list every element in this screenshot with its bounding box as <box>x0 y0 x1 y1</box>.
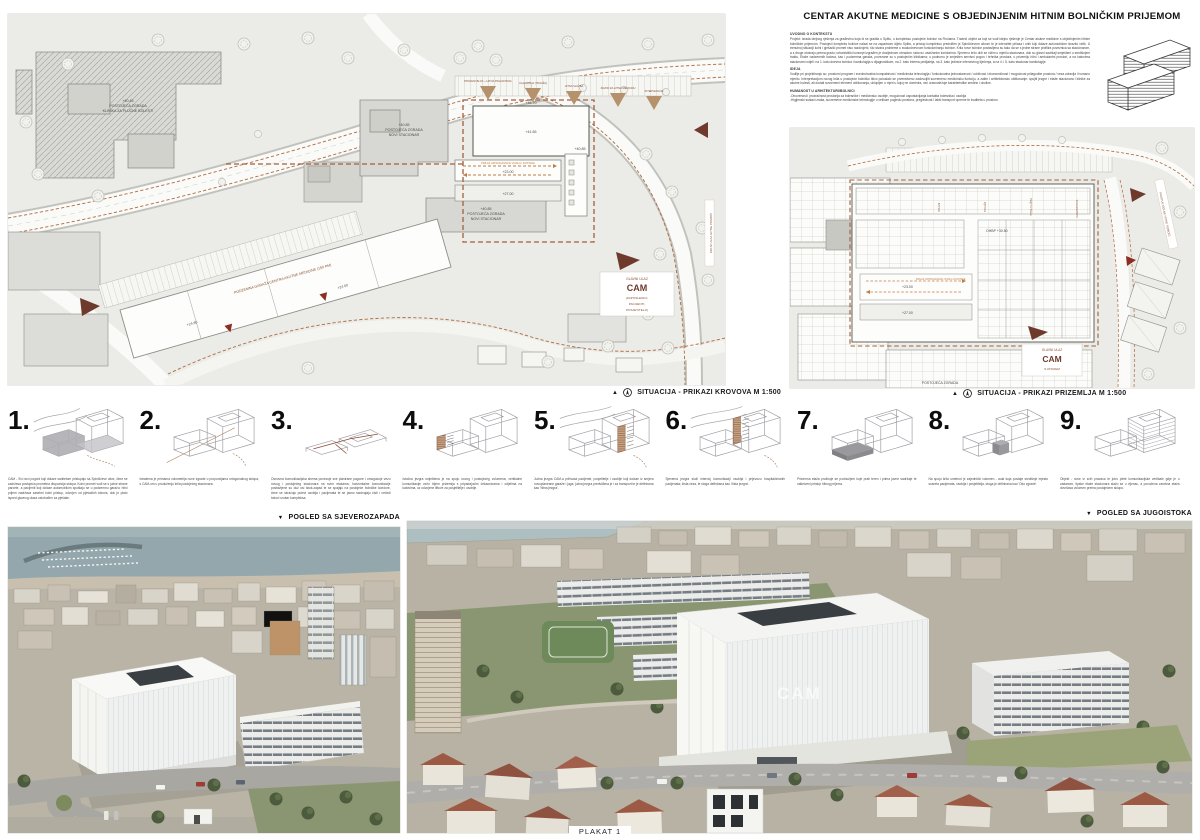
diagram-number: 6. <box>666 407 688 433</box>
intro-text: UVODNO O KONTEKSTU Projekt: izrada idejn… <box>790 29 1090 105</box>
north-icon <box>963 389 972 398</box>
diagram-caption: Sjeverna jezgra služi internoj komunikac… <box>666 477 790 486</box>
diagram-number: 7. <box>797 407 819 433</box>
svg-text:DIJAGNOSTIKA: DIJAGNOSTIKA <box>1076 199 1079 218</box>
svg-text:NOVI STACIONAR: NOVI STACIONAR <box>389 133 420 137</box>
diagram-caption: Prizemna etaža proširuje se podnožjem ko… <box>797 477 921 486</box>
intro-body: Vodilje pri projektiranju su: prostorni … <box>790 72 1090 86</box>
view-caption-northwest: ▼ POGLED SA SJEVEROZAPADA <box>8 514 400 521</box>
svg-text:PRIJEM: PRIJEM <box>938 203 941 212</box>
diagram-caption: Istočna jezgra smještena je na spoju nov… <box>403 477 527 491</box>
diagram-caption: Na spoju krila umetnut je zajednički vol… <box>929 477 1053 486</box>
diagram-number: 1. <box>8 407 30 433</box>
diagram-caption: Južna jezgra CAM-a prihvaća pacijente, p… <box>534 477 658 491</box>
apartment-tower <box>415 611 461 733</box>
right-plan-caption: ▲ SITUACIJA - PRIKAZI PRIZEMLJA M 1:500 <box>952 389 1126 398</box>
svg-text:+23.00: +23.00 <box>502 170 513 174</box>
diagram-number: 5. <box>534 407 556 433</box>
site-plan-ground: PRIJEM TRIJAŽA HITNA SLUŽBA DIJAGNOSTIKA… <box>790 128 1194 388</box>
diagram-6: 6. Sjeverna jezgra služi internoj komuni… <box>666 401 798 519</box>
corridor-note: PRILAZ VATROGASNOG VOZILA I DOSTAVE <box>481 161 535 165</box>
diagram-1: 1. CAM - Svi novi pogoni koji dolaze san… <box>8 401 140 519</box>
down-triangle-icon: ▼ <box>1086 511 1092 517</box>
corridor-note: PRILAZ VATROGASNOG VOZILA I DOSTAVE <box>916 278 966 281</box>
diagram-4: 4. Istočna jezgra smještena je na spoju … <box>403 401 535 519</box>
diagram-8-axon-icon <box>952 401 1044 471</box>
north-icon <box>623 388 632 397</box>
intro-heading: HUMANOST U ARHITEKTURI/BOLNICI <box>790 89 1090 93</box>
diagram-7: 7. Prizemna etaža proširuje se podnožjem… <box>797 401 929 519</box>
down-triangle-icon: ▼ <box>278 515 284 521</box>
svg-text:+40.45: +40.45 <box>122 99 133 103</box>
diagram-caption: Istražena je primarna volumetrija nove z… <box>140 477 264 486</box>
cam-ground-plan <box>850 180 1098 346</box>
intro-heading: IDEJA <box>790 67 1090 71</box>
diagram-caption: Objekt - nove iz svih pravaca te jutro p… <box>1060 477 1184 491</box>
svg-text:OHBP +30.50: OHBP +30.50 <box>986 229 1008 233</box>
competition-board: PODZEMNA GARAŽA CENTRA AKUTNE MEDICINE (… <box>0 0 1200 840</box>
svg-text:+27.00: +27.00 <box>502 192 513 196</box>
svg-text:ZAVOD ZA HITNU MEDICINU: ZAVOD ZA HITNU MEDICINU <box>601 86 636 90</box>
svg-text:+40.85: +40.85 <box>480 207 491 211</box>
intro-body: Projekt: izrada idejnog rješenja za građ… <box>790 37 1090 64</box>
diagram-3: 3. Osnovna komunikacijska shema povezuje… <box>271 401 403 519</box>
svg-text:NOVI STACIONAR: NOVI STACIONAR <box>471 217 502 221</box>
diagram-caption: Osnovna komunikacijska shema povezuje sv… <box>271 477 395 500</box>
svg-text:GLAVNI ULAZ: GLAVNI ULAZ <box>1042 348 1063 352</box>
svg-text:+27.00: +27.00 <box>902 311 913 315</box>
svg-text:+23.00: +23.00 <box>902 285 913 289</box>
diagram-2-axon-icon <box>163 401 255 471</box>
svg-text:HITNA SLUŽBA: HITNA SLUŽBA <box>1030 198 1033 216</box>
render-southeast: CAM <box>407 521 1192 833</box>
svg-text:+40.85: +40.85 <box>574 147 585 151</box>
svg-text:+46.70: +46.70 <box>525 101 536 105</box>
view-caption-southeast: ▼ POGLED SA JUGOISTOKA <box>407 510 1192 517</box>
svg-text:PRIJAVNI BLOK + HITNA PSIHIJAT: PRIJAVNI BLOK + HITNA PSIHIJATRIJA <box>464 79 512 83</box>
cam-entry-label: GLAVNI ULAZ CAM S ATRIJEM <box>1022 344 1082 376</box>
cam-entry-label: GLAVNI ULAZ CAM (ZAPOSLENICI, PACIJENTI,… <box>600 272 674 316</box>
svg-text:GLAVNI ULAZ: GLAVNI ULAZ <box>626 277 648 281</box>
diagram-number: 3. <box>271 407 293 433</box>
diagram-5: 5. Južna jezgra CAM-a prihvaća pacijente… <box>534 401 666 519</box>
diagram-5-axon-icon <box>558 401 650 471</box>
site-plan-roofs: PODZEMNA GARAŽA CENTRA AKUTNE MEDICINE (… <box>8 14 725 385</box>
svg-text:S ATRIJEM: S ATRIJEM <box>1044 367 1060 371</box>
render-northwest <box>8 527 400 833</box>
cam-facade-text: CAM <box>777 684 822 703</box>
svg-text:CAM: CAM <box>1042 354 1061 364</box>
diagram-3-axon-icon <box>295 401 387 471</box>
svg-text:KOLNI ULAZ HITNE POMOĆI: KOLNI ULAZ HITNE POMOĆI <box>708 213 713 254</box>
svg-text:CAM: CAM <box>627 283 648 293</box>
right-plan-caption-text: SITUACIJA - PRIKAZI PRIZEMLJA M 1:500 <box>977 390 1126 397</box>
intro-heading: UVODNO O KONTEKSTU <box>790 32 1090 36</box>
svg-text:POSTOJEĆA ZGRADA: POSTOJEĆA ZGRADA <box>109 103 147 108</box>
intro-body: -Otvorenost i prozračnost prostorija za … <box>790 94 1090 103</box>
diagram-number: 2. <box>140 407 162 433</box>
svg-text:(ZAPOSLENICI,: (ZAPOSLENICI, <box>626 296 648 300</box>
svg-text:INTERVENCIJE: INTERVENCIJE <box>645 89 664 93</box>
diagram-number: 4. <box>403 407 425 433</box>
diagram-2: 2. Istražena je primarna volumetrija nov… <box>140 401 272 519</box>
concept-axon-icon <box>1096 36 1194 116</box>
diagram-number: 9. <box>1060 407 1082 433</box>
svg-text:POSJETITELJI): POSJETITELJI) <box>626 308 648 312</box>
north-triangle-icon: ▲ <box>952 391 958 397</box>
diagram-4-axon-icon <box>426 401 518 471</box>
diagram-7-axon-icon <box>821 401 913 471</box>
diagram-9-axon-icon <box>1084 401 1176 471</box>
north-triangle-icon: ▲ <box>612 390 618 396</box>
svg-text:TRIJAŽA: TRIJAŽA <box>984 202 987 212</box>
diagram-8: 8. Na spoju krila umetnut je zajednički … <box>929 401 1061 519</box>
svg-text:PACIJENTI,: PACIJENTI, <box>629 302 646 306</box>
svg-text:+41.65: +41.65 <box>525 130 536 134</box>
concept-diagrams: 1. CAM - Svi novi pogoni koji dolaze san… <box>8 401 1192 519</box>
left-plan-caption-text: SITUACIJA - PRIKAZI KROVOVA M 1:500 <box>637 389 781 396</box>
side-entry-label: KOLNI ULAZ HITNE POMOĆI <box>705 200 714 266</box>
diagram-1-axon-icon <box>32 401 124 471</box>
sea-marina <box>8 527 400 589</box>
sheet-label: PLAKAT 1 <box>0 821 1200 839</box>
diagram-number: 8. <box>929 407 951 433</box>
diagram-9: 9. Objekt - nove iz svih pravaca te jutr… <box>1060 401 1192 519</box>
page-title: CENTAR AKUTNE MEDICINE S OBJEDINJENIM HI… <box>790 11 1194 22</box>
diagram-caption: CAM - Svi novi pogoni koji dolaze sanite… <box>8 477 132 500</box>
svg-text:POSTOJEĆA ZGRADA: POSTOJEĆA ZGRADA <box>467 211 505 216</box>
svg-text:+40.85: +40.85 <box>398 123 409 127</box>
svg-text:POSTOJEĆA ZGRADA: POSTOJEĆA ZGRADA <box>385 127 423 132</box>
svg-text:POSTOJEĆA ZGRADA: POSTOJEĆA ZGRADA <box>922 380 959 385</box>
svg-text:KLINIKA ZA PLUĆNE BOLESTI: KLINIKA ZA PLUĆNE BOLESTI <box>103 108 154 113</box>
left-plan-caption: ▲ SITUACIJA - PRIKAZI KROVOVA M 1:500 <box>612 388 781 397</box>
diagram-6-axon-icon <box>689 401 781 471</box>
